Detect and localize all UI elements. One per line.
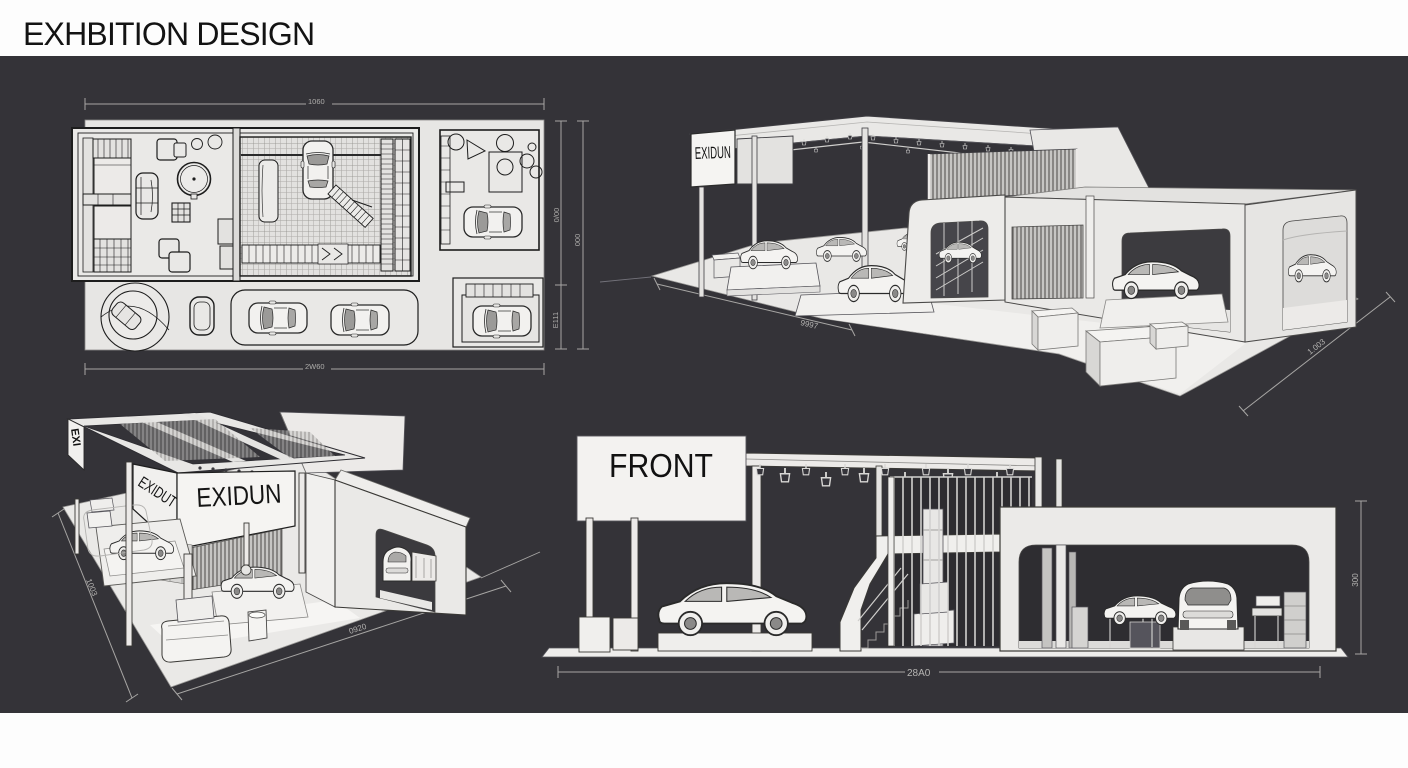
svg-text:FRONT: FRONT bbox=[609, 447, 713, 484]
svg-text:EXI: EXI bbox=[68, 428, 82, 447]
svg-text:EXIDUN: EXIDUN bbox=[694, 143, 731, 163]
svg-text:0/00: 0/00 bbox=[552, 208, 561, 223]
svg-text:1060: 1060 bbox=[308, 97, 325, 106]
svg-text:28A0: 28A0 bbox=[907, 668, 931, 679]
svg-text:E111: E111 bbox=[551, 312, 560, 328]
svg-text:EXHBITION DESIGN: EXHBITION DESIGN bbox=[23, 16, 314, 52]
svg-text:000: 000 bbox=[573, 234, 582, 247]
svg-text:300: 300 bbox=[1351, 573, 1360, 587]
svg-text:EXIDUN: EXIDUN bbox=[196, 479, 282, 513]
svg-text:2W60: 2W60 bbox=[305, 362, 325, 371]
